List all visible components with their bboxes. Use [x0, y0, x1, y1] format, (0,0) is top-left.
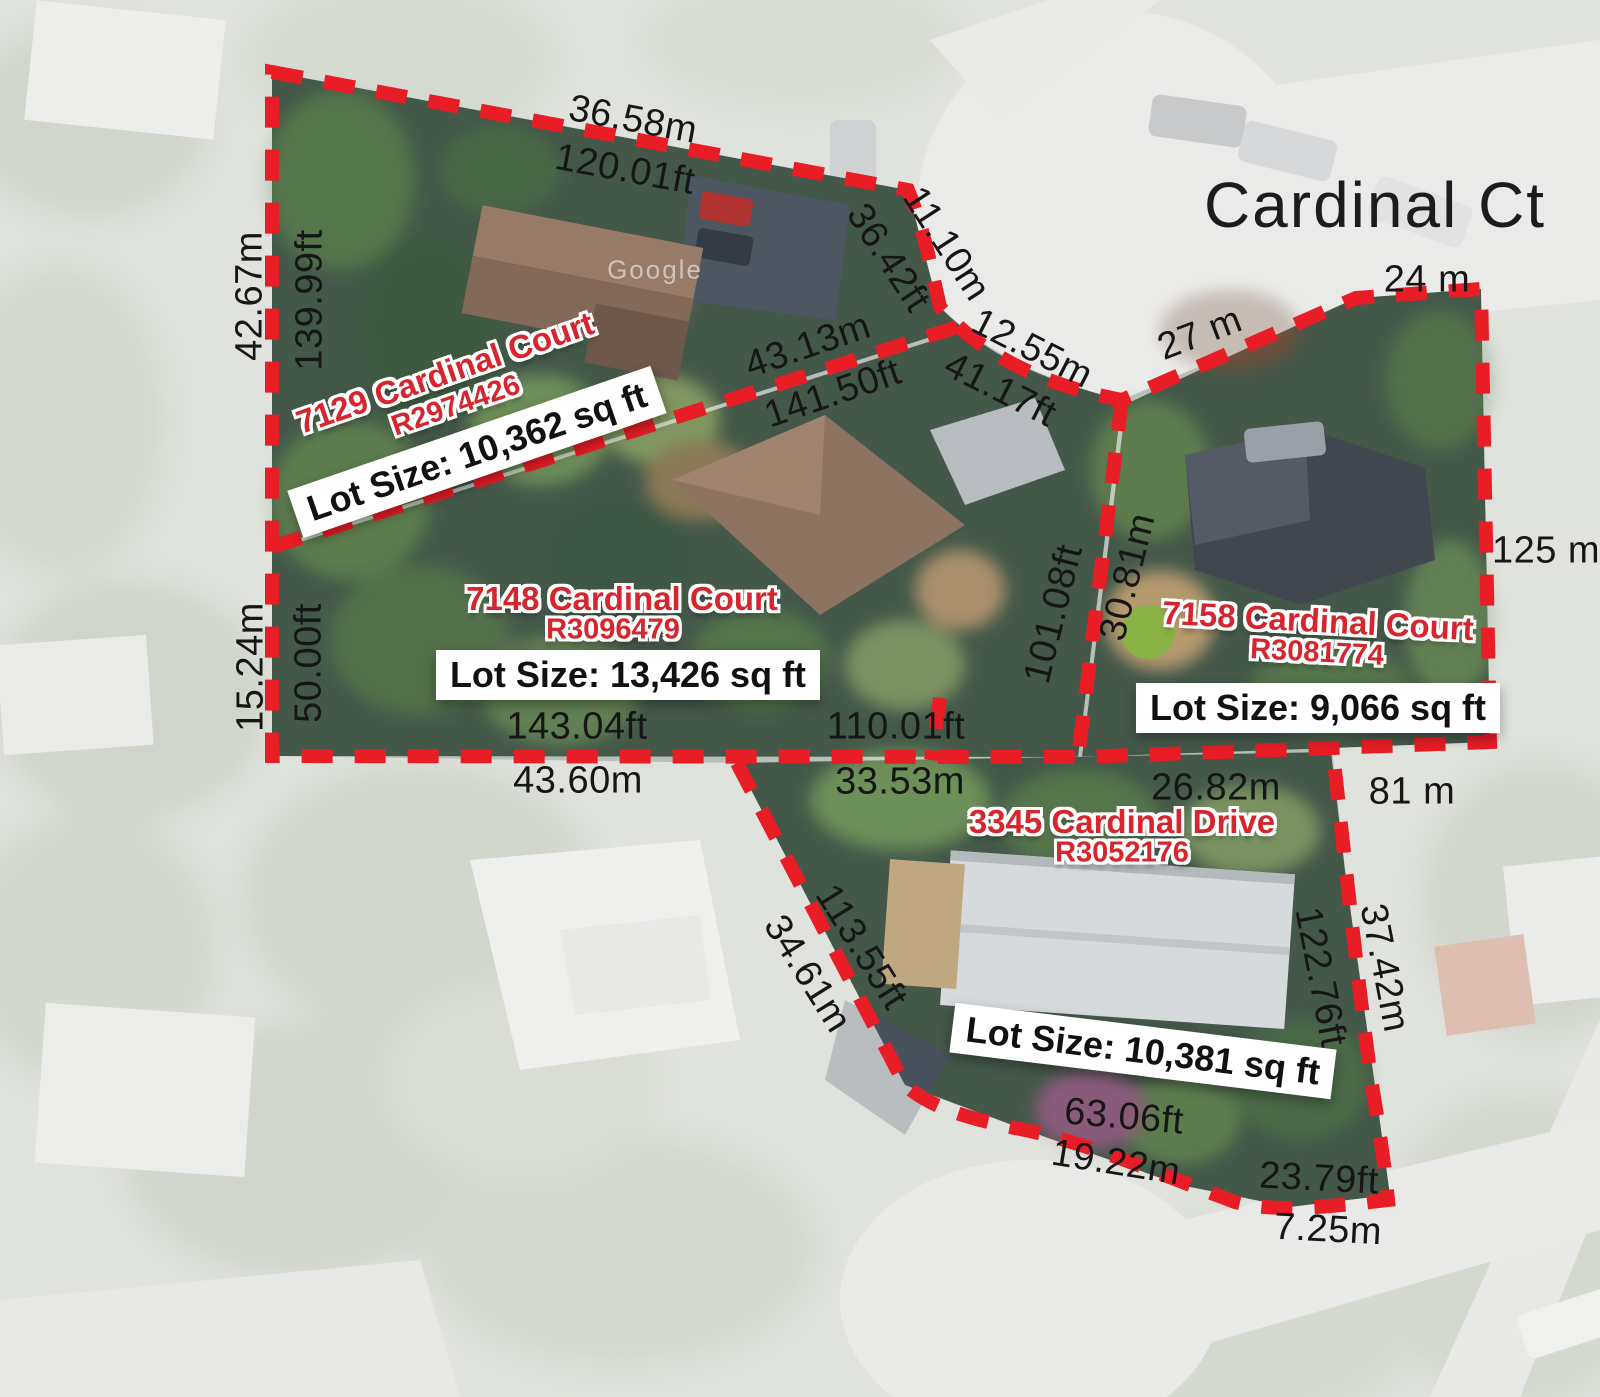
mls-3345: R3052176	[1055, 837, 1189, 870]
aerial-map: Cardinal Ct Google 36.58m 120.01ft 42.67…	[0, 0, 1600, 1397]
google-watermark: Google	[607, 255, 703, 286]
dim-7158-right: 125 m	[1492, 530, 1600, 573]
address-3345: 3345 Cardinal Drive	[969, 803, 1275, 841]
dim-7129-left-m: 42.67m	[229, 231, 272, 361]
dim-3345-bottom-e-m: 7.25m	[1273, 1206, 1383, 1255]
dim-7148-bottom-e-m: 33.53m	[835, 761, 965, 804]
dim-3345-bottom-e-ft: 23.79ft	[1258, 1154, 1380, 1203]
dim-7129-left-ft: 139.99ft	[289, 229, 332, 370]
dim-7158-bottom-e: 81 m	[1369, 771, 1455, 814]
address-7148: 7148 Cardinal Court	[466, 580, 778, 618]
lot-size-7158: Lot Size: 9,066 sq ft	[1136, 683, 1500, 733]
mls-7148: R3096479	[546, 614, 680, 647]
street-label: Cardinal Ct	[1204, 168, 1546, 242]
dim-7148-bottom-w-m: 43.60m	[513, 760, 643, 803]
dim-7148-left-m: 15.24m	[230, 602, 273, 732]
dim-7148-left-ft: 50.00ft	[288, 603, 331, 723]
dim-7148-bottom-e-ft: 110.01ft	[827, 706, 966, 749]
dim-7148-bottom-w-ft: 143.04ft	[506, 706, 647, 749]
mls-7158: R3081774	[1249, 633, 1384, 673]
dim-7158-top-e: 24 m	[1384, 259, 1470, 302]
lot-size-7148: Lot Size: 13,426 sq ft	[436, 650, 820, 700]
